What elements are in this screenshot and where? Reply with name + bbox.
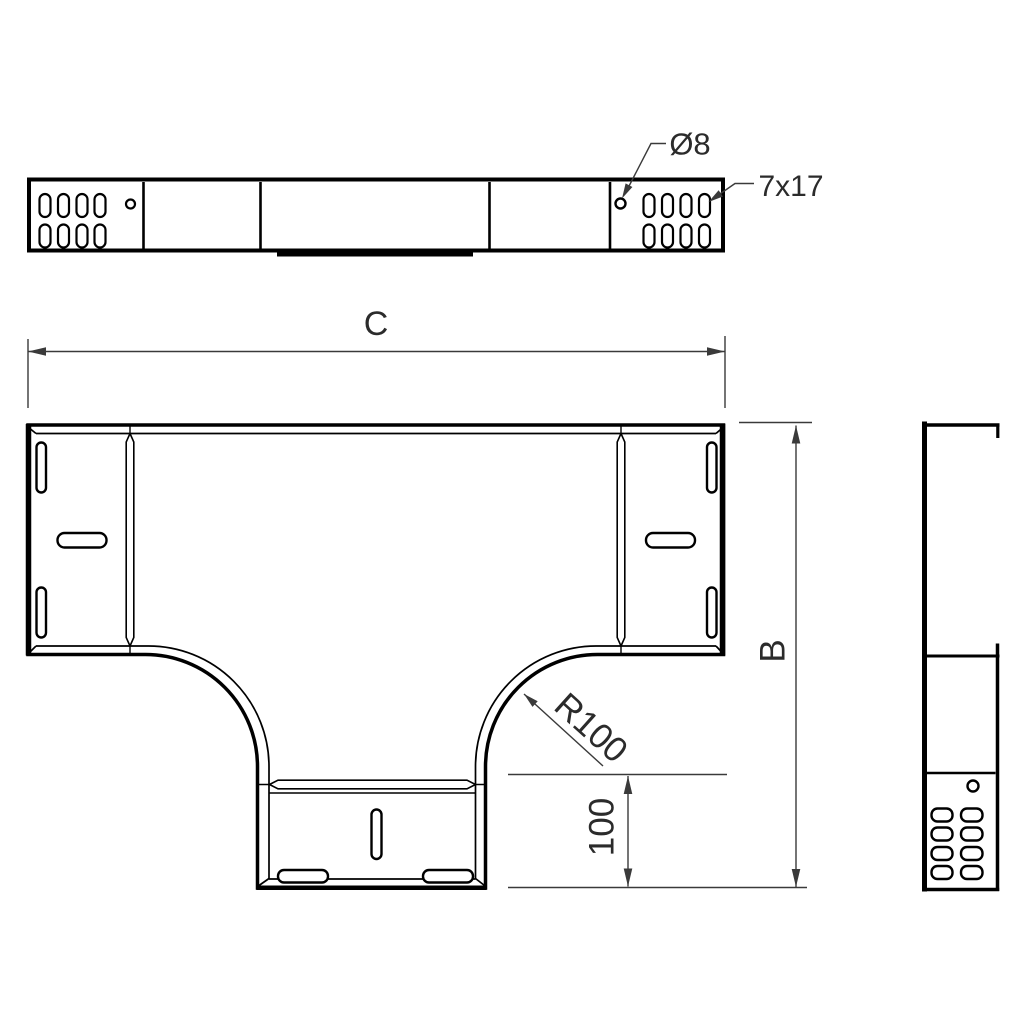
drawing-linework: [0, 0, 1024, 1024]
slot: [37, 443, 47, 493]
slot: [932, 809, 953, 822]
slot: [662, 225, 673, 248]
dimension-100-label: 100: [585, 798, 620, 856]
front-left-arm-slots: [37, 443, 107, 638]
slot-size-label: 7x17: [758, 172, 823, 202]
top-view: [29, 180, 723, 257]
slot: [95, 194, 106, 217]
slot: [961, 809, 983, 822]
top-view-right-perforations: [616, 194, 711, 248]
branch-seam: [258, 780, 487, 793]
slot: [40, 225, 51, 248]
slot: [58, 194, 69, 217]
top-view-outline: [29, 180, 723, 251]
slot: [932, 828, 953, 841]
slot: [681, 225, 692, 248]
slot: [278, 870, 328, 883]
slot: [707, 588, 717, 638]
slot: [95, 225, 106, 248]
slot: [699, 194, 710, 217]
slot: [58, 533, 107, 548]
slot: [77, 225, 88, 248]
slot: [662, 194, 673, 217]
hole-diameter-leader: [622, 144, 666, 199]
slot: [644, 225, 655, 248]
dimension-c-label: C: [364, 307, 389, 341]
slot: [681, 194, 692, 217]
slot: [707, 443, 717, 493]
slot-size-leader: [709, 184, 755, 203]
slot: [961, 828, 983, 841]
slot: [932, 866, 953, 879]
left-arm-seam: [126, 424, 134, 655]
slot: [40, 194, 51, 217]
slot: [699, 225, 710, 248]
front-branch-slots: [278, 810, 473, 883]
slot: [58, 225, 69, 248]
slot: [77, 194, 88, 217]
round-hole: [126, 200, 135, 209]
slot: [961, 866, 983, 879]
slot: [423, 870, 473, 883]
top-view-left-perforations: [40, 194, 136, 248]
dimension-c: [28, 336, 725, 408]
slot: [932, 847, 953, 860]
slot: [646, 533, 695, 548]
right-arm-seam: [617, 424, 625, 655]
side-view-slots: [932, 809, 983, 880]
dimension-b-label: B: [756, 639, 791, 662]
slot: [961, 847, 983, 860]
top-view-section-lines: [144, 182, 611, 249]
slot: [37, 588, 47, 638]
hole-diameter-label: Ø8: [669, 129, 710, 160]
branch-opening-edge: [277, 249, 473, 257]
slot: [372, 810, 382, 860]
side-view: [922, 422, 1000, 892]
front-right-arm-slots: [646, 443, 717, 638]
technical-drawing-t-piece: C B R100 100 Ø8 7x17: [0, 0, 1024, 1024]
round-hole: [968, 781, 979, 792]
round-hole: [616, 199, 626, 209]
dimension-100: [508, 775, 807, 888]
slot: [644, 194, 655, 217]
